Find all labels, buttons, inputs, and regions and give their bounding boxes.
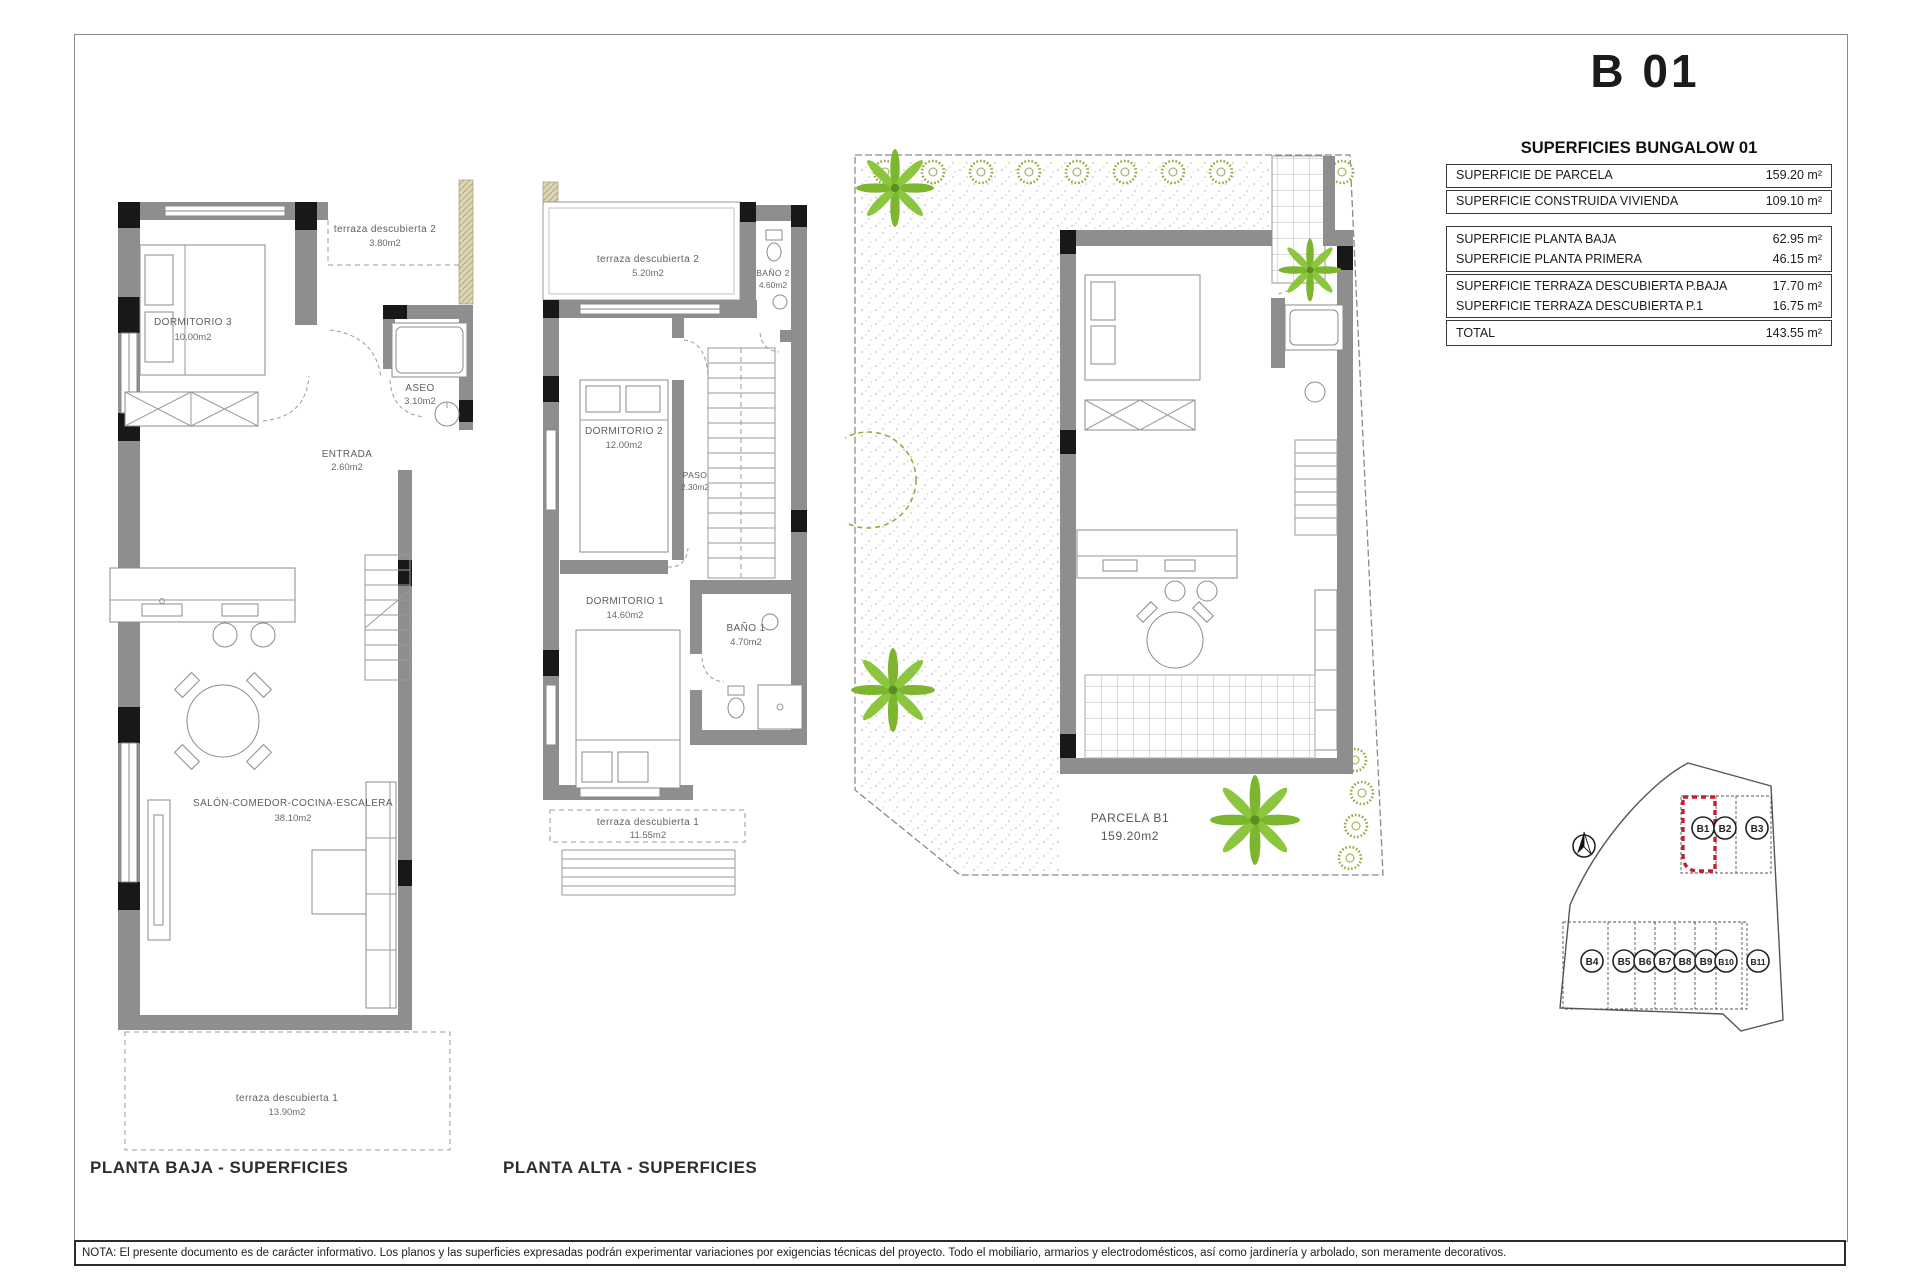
plot-badge-b8: B8 — [1679, 957, 1692, 968]
row-value: 17.70 m² — [1773, 276, 1822, 296]
salon-area: 38.10m2 — [275, 813, 312, 824]
row-label: SUPERFICIE PLANTA PRIMERA — [1456, 249, 1642, 269]
row-value: 16.75 m² — [1773, 296, 1822, 316]
sofa — [366, 782, 396, 1008]
bano1-area: 4.70m2 — [730, 637, 762, 648]
parcel-area: 159.20m2 — [1101, 829, 1159, 843]
terrace-1-outline — [125, 1032, 450, 1150]
bano2-area: 4.60m2 — [759, 280, 788, 290]
entrada-area: 2.60m2 — [331, 462, 363, 473]
wardrobe — [125, 392, 258, 426]
aseo-fixtures — [390, 323, 467, 426]
table-row: SUPERFICIE PLANTA PRIMERA 46.15 m² — [1447, 249, 1831, 269]
table-row: SUPERFICIE PLANTA BAJA 62.95 m² — [1447, 229, 1831, 249]
plot-location-map: B1 B2 B3 B4 B5 B6 B7 B8 B9 B10 B11 — [1555, 755, 1865, 1045]
tiled-terrace — [1085, 675, 1315, 758]
paso-area: 2.30m2 — [681, 482, 710, 492]
table-row: SUPERFICIE TERRAZA DESCUBIERTA P.BAJA 17… — [1447, 276, 1831, 296]
aseo-area: 3.10m2 — [404, 396, 436, 407]
upper-floor-title: PLANTA ALTA - SUPERFICIES — [503, 1158, 757, 1178]
terraza1-area: 11.55m2 — [630, 830, 666, 841]
surfaces-table-title: SUPERFICIES BUNGALOW 01 — [1446, 139, 1832, 158]
table-group-total: TOTAL 143.55 m² — [1446, 320, 1832, 346]
development-boundary — [1560, 763, 1783, 1031]
ottoman — [312, 850, 372, 914]
terraza2-label: terraza descubierta 2 — [597, 254, 699, 265]
row-label: SUPERFICIE TERRAZA DESCUBIERTA P.1 — [1456, 296, 1703, 316]
plot-badge-b10: B10 — [1718, 957, 1734, 967]
dormitorio3-area: 10.00m2 — [175, 332, 212, 343]
row-label: SUPERFICIE PLANTA BAJA — [1456, 229, 1616, 249]
hatched-pier — [459, 180, 473, 304]
bano1-label: BAÑO 1 — [726, 621, 765, 634]
table-group-parcela: SUPERFICIE DE PARCELA 159.20 m² — [1446, 164, 1832, 188]
table-group-plantas: SUPERFICIE PLANTA BAJA 62.95 m² SUPERFIC… — [1446, 226, 1832, 272]
row-label: TOTAL — [1456, 323, 1495, 343]
plot-badge-b1: B1 — [1697, 824, 1710, 835]
hatched-pier — [543, 182, 558, 202]
plan-sheet: B 01 SUPERFICIES BUNGALOW 01 SUPERFICIE … — [0, 0, 1920, 1280]
table-row: SUPERFICIE CONSTRUIDA VIVIENDA 109.10 m² — [1447, 191, 1831, 211]
terraza1-label: terraza descubierta 1 — [597, 817, 699, 828]
dormitorio2-area: 12.00m2 — [606, 440, 643, 451]
terraza2-label: terraza descubierta 2 — [334, 224, 436, 235]
garden-gravel — [859, 159, 1060, 871]
ground-floor-title: PLANTA BAJA - SUPERFICIES — [90, 1158, 348, 1178]
dormitorio2-label: DORMITORIO 2 — [585, 426, 663, 437]
dining-table — [175, 673, 272, 770]
table-row: TOTAL 143.55 m² — [1447, 323, 1831, 343]
bed-dormitorio3 — [140, 245, 265, 375]
plot-badge-b3: B3 — [1751, 824, 1764, 835]
terraza1-area: 13.90m2 — [269, 1107, 306, 1118]
plot-badge-b11: B11 — [1750, 957, 1765, 967]
note-bar: NOTA: El presente documento es de caráct… — [74, 1240, 1846, 1266]
plot-badge-b5: B5 — [1618, 957, 1631, 968]
row-value: 62.95 m² — [1773, 229, 1822, 249]
site-plan: PARCELA B1 159.20m2 — [845, 110, 1390, 890]
row-label: SUPERFICIE CONSTRUIDA VIVIENDA — [1456, 191, 1678, 211]
row-value: 46.15 m² — [1773, 249, 1822, 269]
row-value: 109.10 m² — [1766, 191, 1822, 211]
note-text: NOTA: El presente documento es de caráct… — [76, 1247, 1506, 1259]
terrace-2 — [543, 202, 740, 300]
row-value: 159.20 m² — [1766, 165, 1822, 185]
table-row: SUPERFICIE TERRAZA DESCUBIERTA P.1 16.75… — [1447, 296, 1831, 316]
entrada-label: ENTRADA — [322, 449, 373, 460]
drawing-title: B 01 — [1540, 44, 1750, 98]
bed-dormitorio1 — [576, 548, 688, 788]
compass-icon — [1573, 832, 1595, 857]
bed-dormitorio2 — [580, 340, 708, 552]
stairs — [708, 348, 775, 578]
row-label: SUPERFICIE DE PARCELA — [1456, 165, 1613, 185]
terraza2-area: 3.80m2 — [369, 238, 401, 249]
upper-floor-plan: terraza descubierta 2 5.20m2 BAÑO 2 4.60… — [540, 180, 820, 925]
parcel-label: PARCELA B1 — [1091, 811, 1169, 825]
salon-label: SALÓN-COMEDOR-COCINA-ESCALERA — [193, 796, 393, 809]
row-label: SUPERFICIE TERRAZA DESCUBIERTA P.BAJA — [1456, 276, 1727, 296]
plot-badge-b7: B7 — [1659, 957, 1672, 968]
table-group-terrazas: SUPERFICIE TERRAZA DESCUBIERTA P.BAJA 17… — [1446, 274, 1832, 318]
plot-badge-b2: B2 — [1719, 824, 1732, 835]
bano2-label: BAÑO 2 — [756, 268, 790, 278]
plot-badge-b6: B6 — [1639, 957, 1652, 968]
plot-badge-b4: B4 — [1586, 957, 1599, 968]
dormitorio1-label: DORMITORIO 1 — [586, 596, 664, 607]
plot-badge-b9: B9 — [1700, 957, 1713, 968]
ground-floor-plan: terraza descubierta 2 3.80m2 DORMITORIO … — [90, 170, 490, 1170]
row-value: 143.55 m² — [1766, 323, 1822, 343]
terraza1-label: terraza descubierta 1 — [236, 1093, 338, 1104]
dormitorio3-label: DORMITORIO 3 — [154, 317, 232, 328]
paso-label: PASO — [683, 470, 708, 480]
table-group-construida: SUPERFICIE CONSTRUIDA VIVIENDA 109.10 m² — [1446, 190, 1832, 214]
tv-unit — [148, 800, 170, 940]
terraza2-area: 5.20m2 — [632, 268, 664, 279]
dormitorio1-area: 14.60m2 — [607, 610, 644, 621]
aseo-label: ASEO — [405, 383, 434, 394]
stool — [251, 623, 275, 647]
table-row: SUPERFICIE DE PARCELA 159.20 m² — [1447, 165, 1831, 185]
stool — [213, 623, 237, 647]
